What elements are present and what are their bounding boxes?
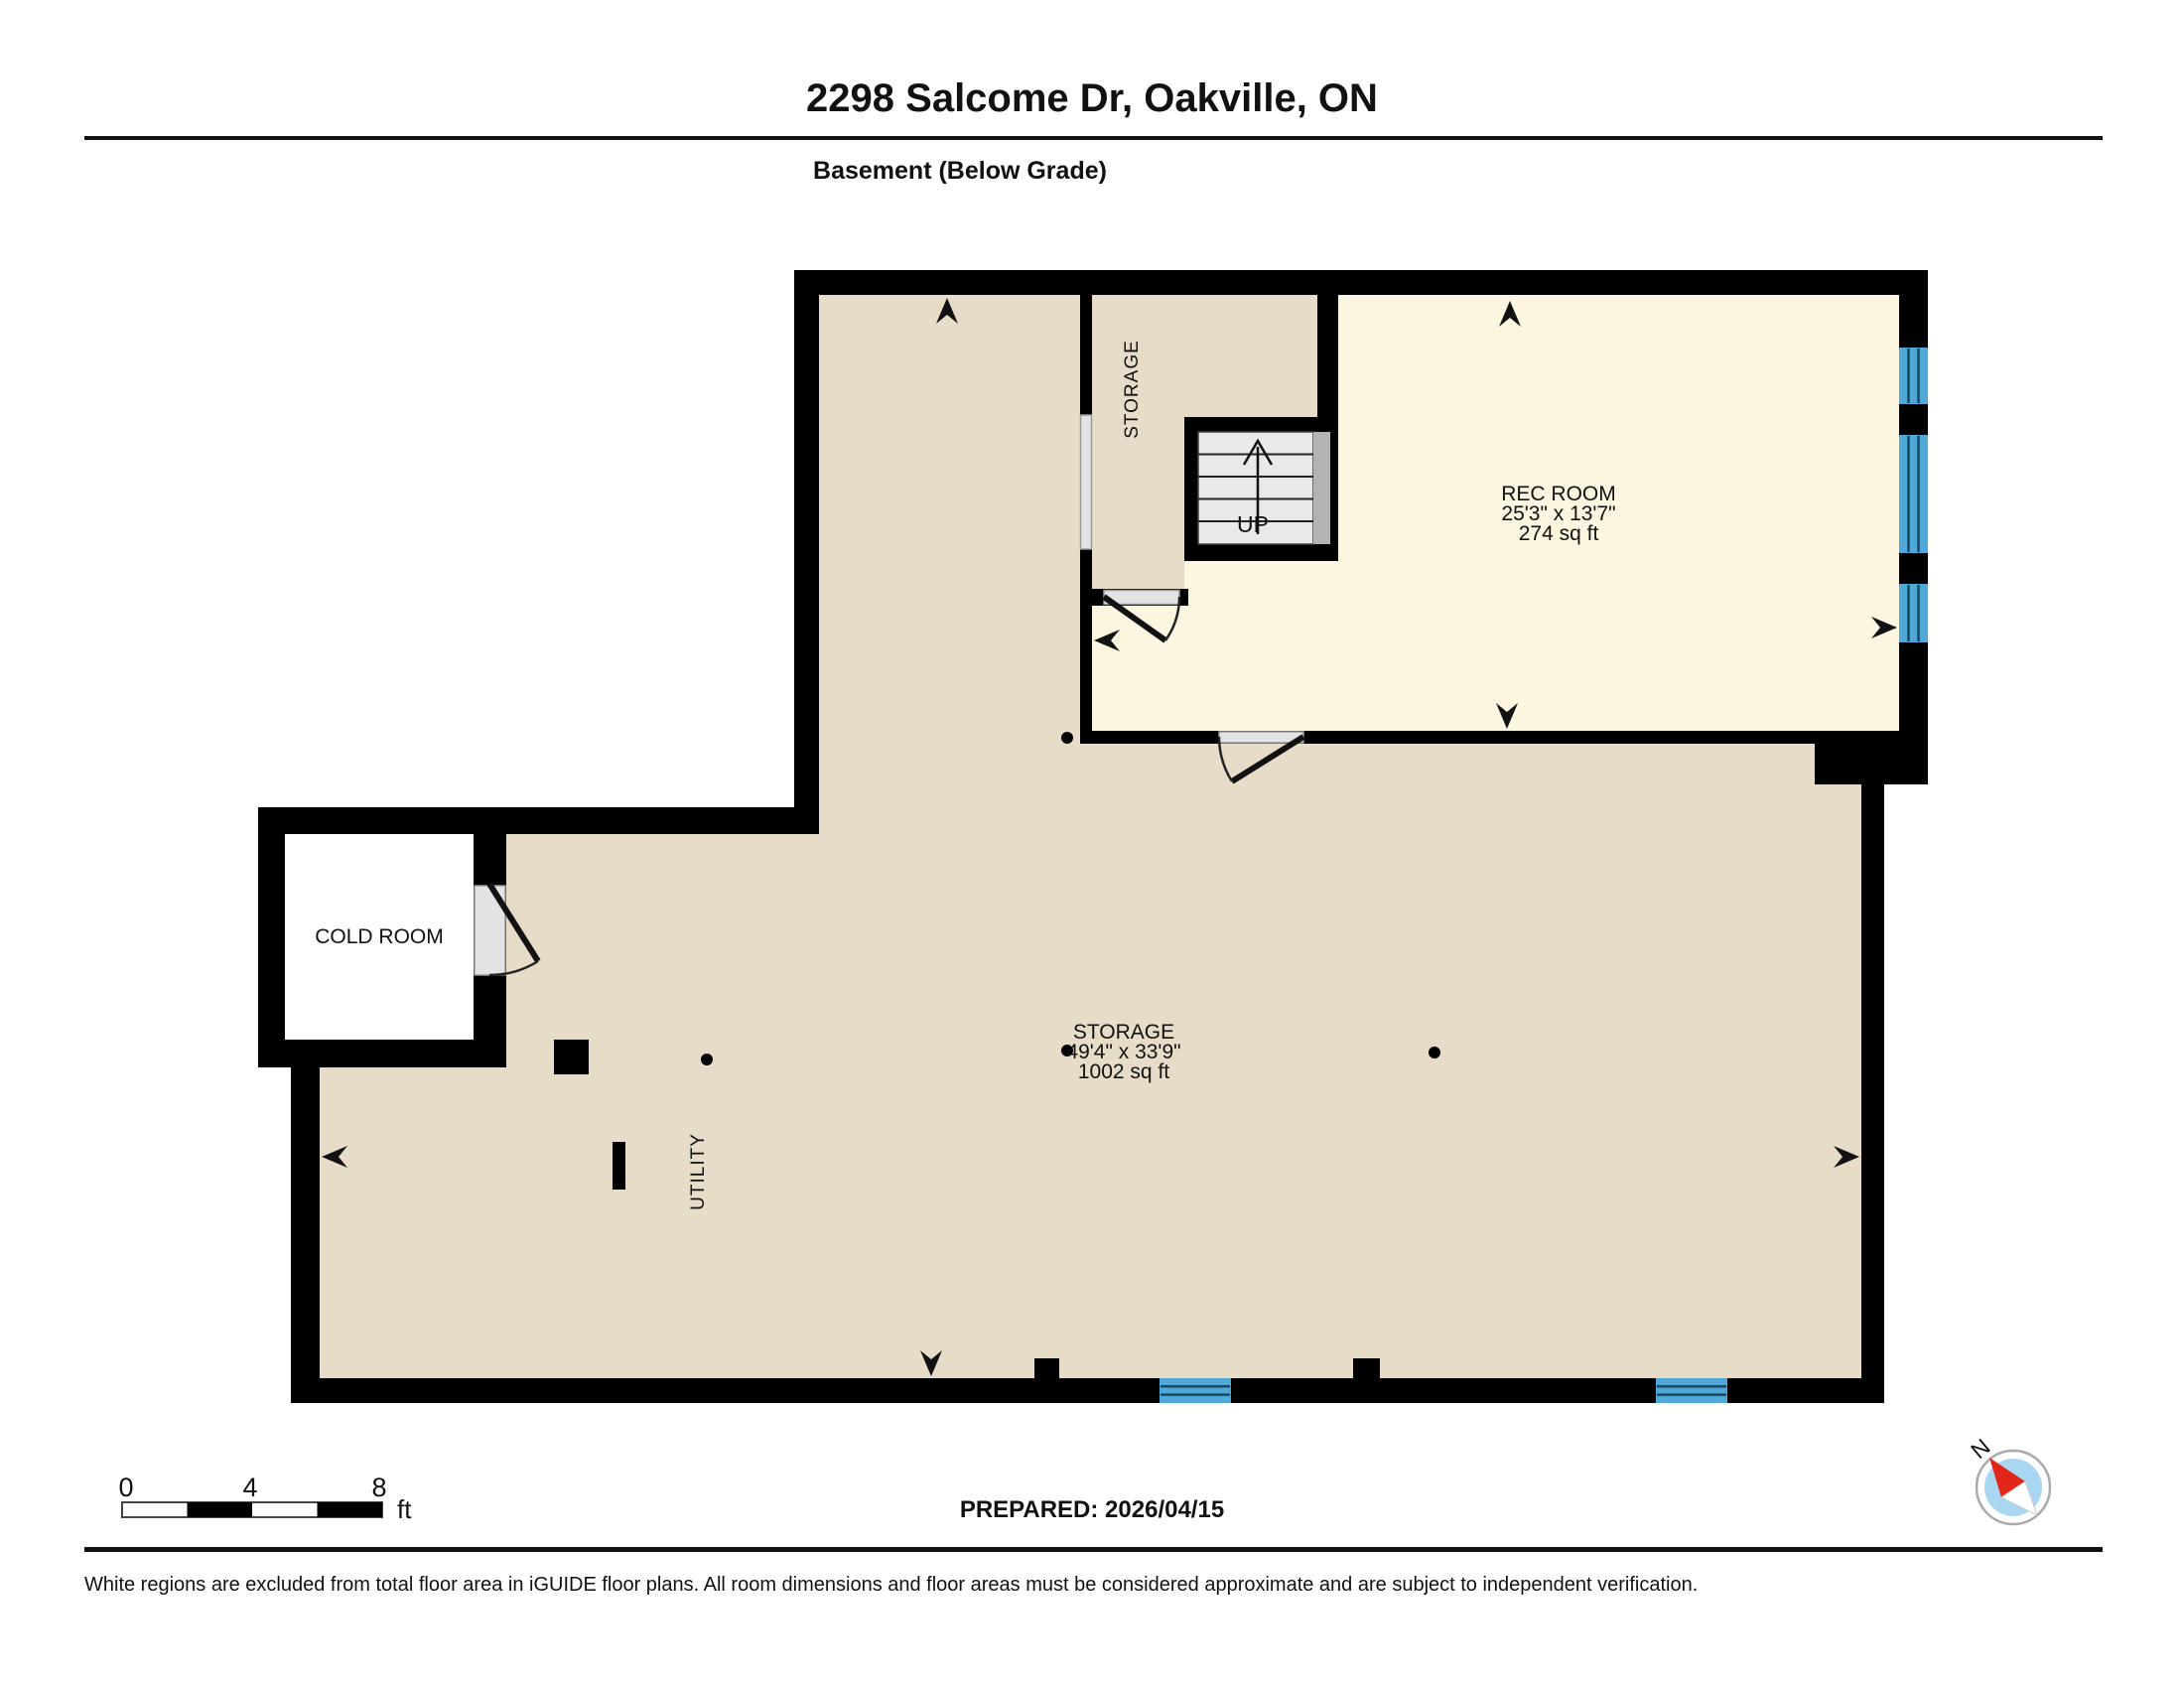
footer-divider — [84, 1547, 2103, 1552]
structural-post — [1353, 1358, 1380, 1378]
wall-bottom — [291, 1378, 1884, 1403]
storage-upper-label: STORAGE — [1122, 340, 1143, 439]
floorplan-canvas: 2298 Salcome Dr, Oakville, ON Basement (… — [0, 0, 2184, 1688]
column-dot — [701, 1054, 713, 1065]
wall-top — [794, 270, 1928, 295]
floor-subtitle: Basement (Below Grade) — [813, 157, 1107, 185]
corridor-floor — [819, 295, 1092, 750]
wall-stairs-top — [1184, 417, 1338, 432]
scale-bar: 0 4 8 ft — [118, 1473, 412, 1524]
wall-upper-left — [794, 270, 819, 834]
wall-lower-right — [1861, 731, 1884, 1403]
column-dot — [1429, 1047, 1440, 1058]
scale-unit-label: ft — [397, 1494, 412, 1524]
structural-post — [613, 1142, 625, 1190]
header-divider — [84, 136, 2103, 140]
structural-post — [1034, 1358, 1059, 1378]
scale-tick-0: 0 — [118, 1473, 133, 1502]
wall-stairs-south — [1184, 544, 1338, 561]
window-right-1 — [1899, 348, 1928, 404]
wall-bump-left — [258, 807, 285, 1067]
stairs-landing — [1313, 432, 1330, 544]
window-bottom-1 — [1160, 1378, 1231, 1403]
floorplan-page: 2298 Salcome Dr, Oakville, ON Basement (… — [0, 0, 2184, 1688]
wall-lower-left — [291, 1040, 320, 1403]
footer-disclaimer: White regions are excluded from total fl… — [84, 1574, 1698, 1596]
corridor-door-opening — [1081, 415, 1092, 549]
storage-main-label: STORAGE 49'4" x 33'9" 1002 sq ft — [1066, 1021, 1180, 1083]
rec-room-area: 274 sq ft — [1519, 522, 1599, 545]
window-right-3 — [1899, 584, 1928, 642]
page-title: 2298 Salcome Dr, Oakville, ON — [806, 76, 1378, 120]
wall-stairs-left — [1184, 417, 1198, 561]
prepared-date: PREPARED: 2026/04/15 — [960, 1496, 1224, 1523]
utility-label: UTILITY — [688, 1133, 709, 1210]
stairs-up-label: UP — [1237, 511, 1269, 537]
rec-room-door-opening — [1219, 732, 1303, 743]
scale-bar-segment — [318, 1502, 383, 1517]
scale-tick-4: 4 — [242, 1473, 257, 1502]
compass: N — [1966, 1434, 2050, 1524]
column-dot — [1061, 732, 1073, 744]
wall-bump-top — [258, 807, 819, 834]
scale-bar-segment — [188, 1502, 253, 1517]
storage-main-area: 1002 sq ft — [1078, 1060, 1169, 1083]
wall-recroom-south — [1092, 731, 1864, 744]
window-right-2 — [1899, 435, 1928, 553]
cold-room-label: COLD ROOM — [315, 925, 444, 948]
scale-tick-8: 8 — [371, 1473, 386, 1502]
structural-post — [554, 1040, 589, 1074]
window-bottom-2 — [1656, 1378, 1727, 1403]
